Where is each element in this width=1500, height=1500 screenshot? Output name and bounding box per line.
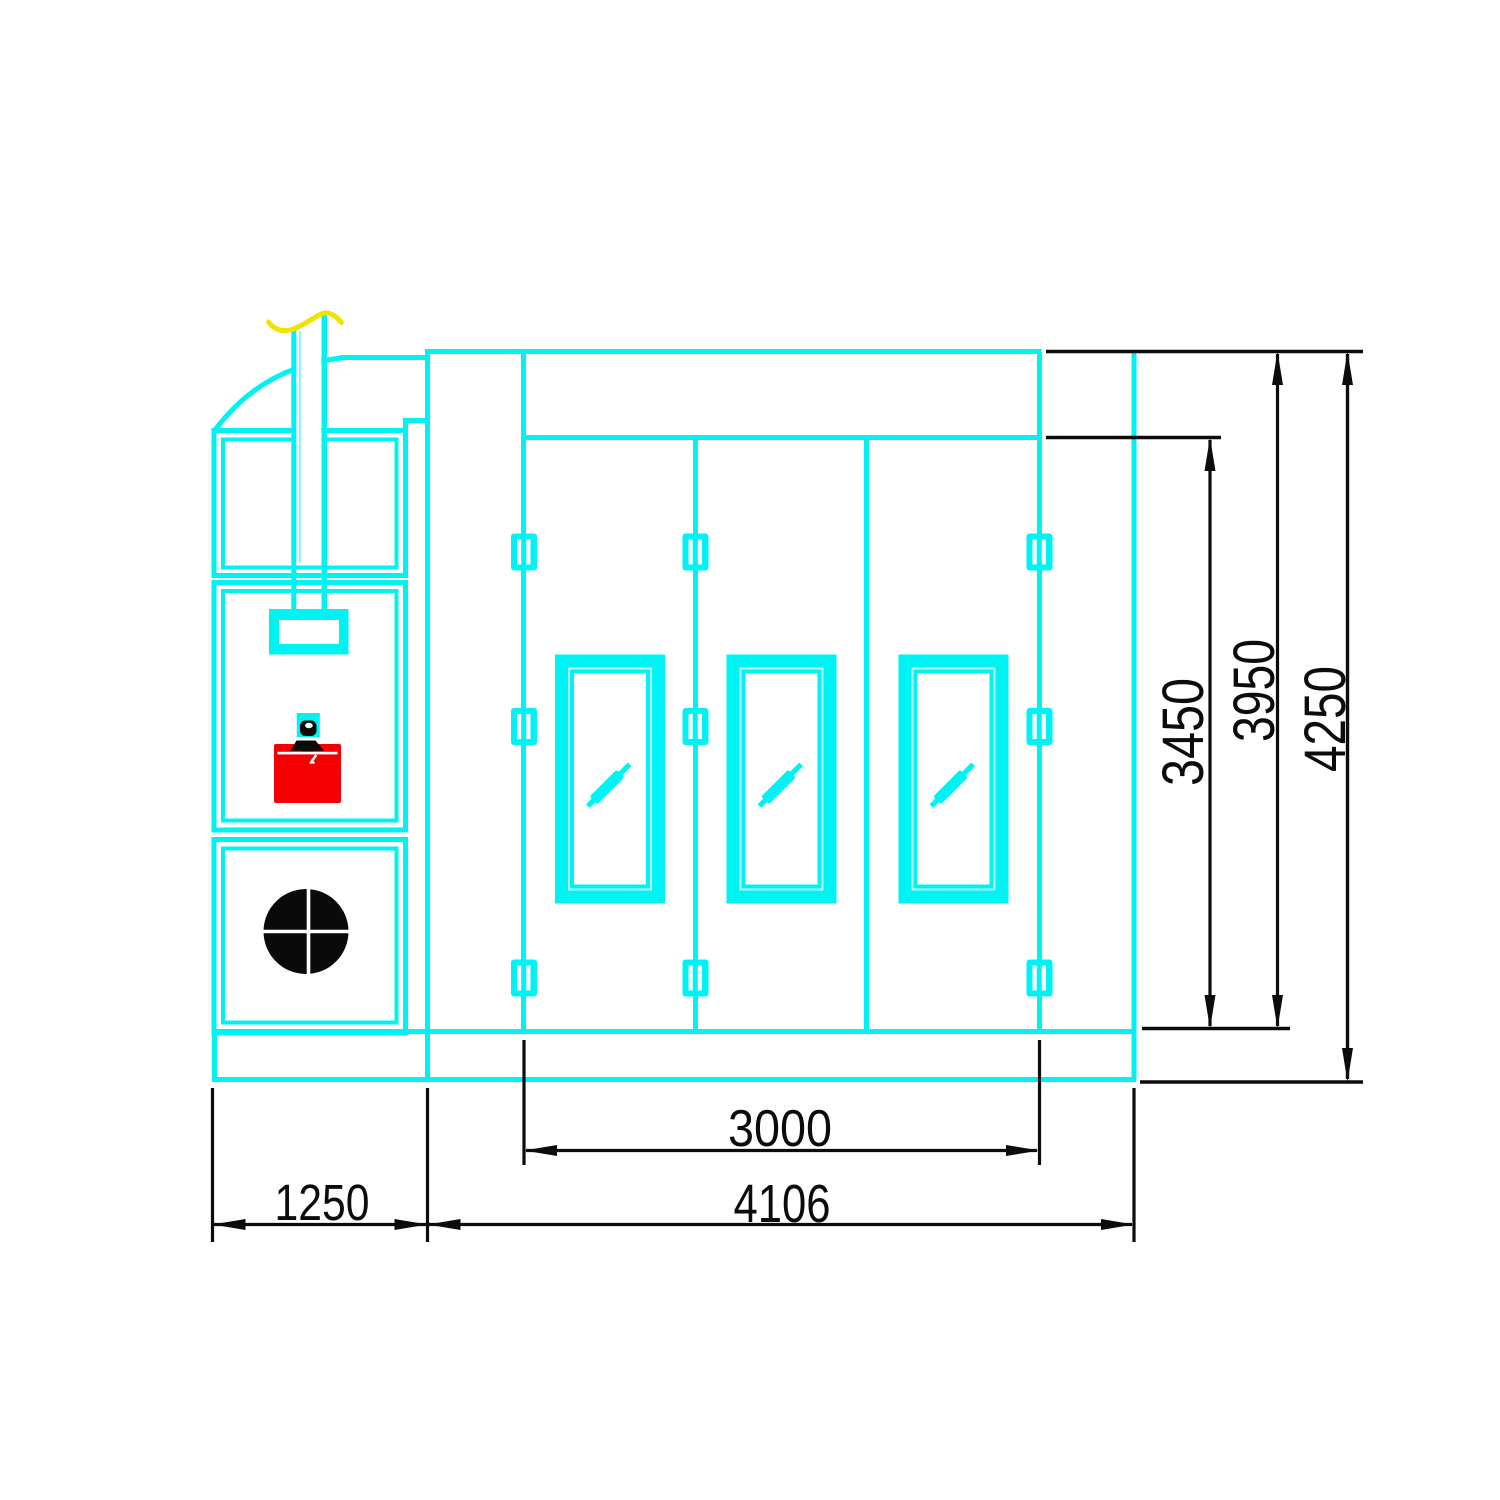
svg-text:3450: 3450 <box>1151 678 1216 786</box>
svg-text:1250: 1250 <box>275 1174 370 1231</box>
svg-text:4250: 4250 <box>1293 666 1358 772</box>
svg-text:3950: 3950 <box>1222 639 1287 742</box>
svg-text:3000: 3000 <box>728 1100 832 1158</box>
svg-text:4106: 4106 <box>734 1174 831 1234</box>
